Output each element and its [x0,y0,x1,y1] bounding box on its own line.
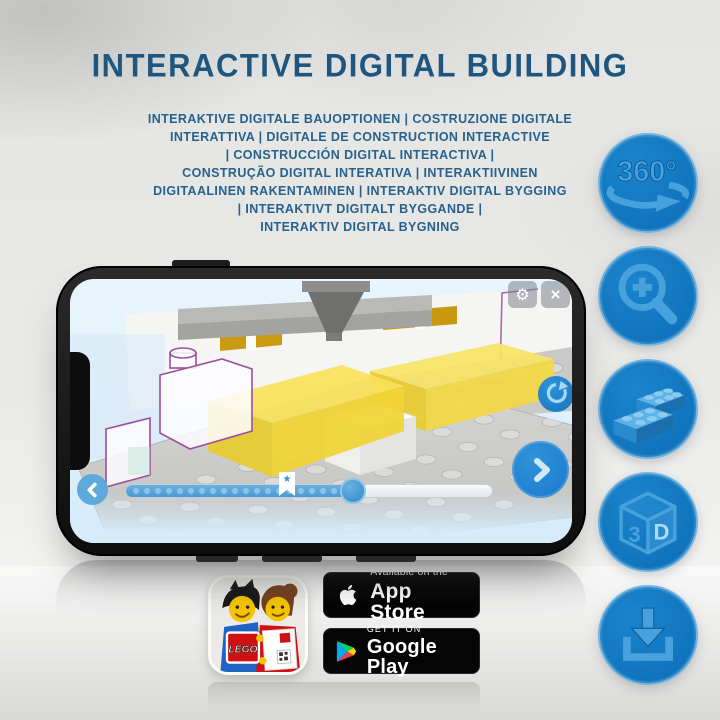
store-row-reflection [208,682,480,708]
close-button[interactable]: × [541,281,570,308]
slider-dot [298,488,304,494]
slider-dot [144,488,150,494]
feature-download-badge [598,585,698,685]
subtitle-line: | INTERAKTIVT DIGITALT BYGGANDE | [60,200,660,218]
cube-face-d: D [653,519,669,544]
slider-dot [221,488,227,494]
slider-dot [309,488,315,494]
zoom-in-icon [600,248,696,344]
lego-3d-build-scene[interactable] [70,279,572,543]
phone-screen: ⚙ × [70,279,572,543]
chevron-left-icon [82,479,104,501]
slider-dot [320,488,326,494]
next-step-button[interactable] [512,441,569,498]
subtitle-line: INTERATTIVA | DIGITALE DE CONSTRUCTION I… [60,128,660,146]
rotate-view-button[interactable] [538,376,572,412]
phone-reflection [56,560,586,640]
360-label: 360° [617,156,677,188]
slider-dot [177,488,183,494]
google-play-icon [336,638,357,665]
slider-dot [265,488,271,494]
multilingual-subtitle: INTERAKTIVE DIGITALE BAUOPTIONEN | COSTR… [60,110,660,236]
slider-dot [188,488,194,494]
previous-step-button[interactable] [77,474,108,505]
feature-zoom-badge [598,246,698,346]
download-icon [600,587,696,683]
close-icon: × [551,285,561,305]
google-play-label: Google Play [367,637,469,677]
subtitle-line: INTERAKTIVE DIGITALE BAUOPTIONEN | COSTR… [60,110,660,128]
chevron-right-icon [526,455,556,485]
slider-dot [199,488,205,494]
gear-icon: ⚙ [515,285,529,305]
slider-dot [232,488,238,494]
3d-view-icon: 3 D [600,474,696,570]
build-progress-slider[interactable]: ★ [125,484,493,498]
slider-dot [254,488,260,494]
subtitle-line: | CONSTRUCCIÓN DIGITAL INTERACTIVA | [60,146,660,164]
rotate-icon [541,379,571,409]
subtitle-line: INTERAKTIV DIGITAL BYGNING [60,218,660,236]
phone-mockup: ⚙ × [56,266,586,556]
slider-thumb[interactable] [340,478,366,504]
slider-filled-track [126,485,356,497]
subtitle-line: CONSTRUÇÃO DIGITAL INTERATIVA | INTERAKT… [60,164,660,182]
lego-brick-icon [600,361,696,457]
slider-dot [155,488,161,494]
promo-image: INTERACTIVE DIGITAL BUILDING INTERAKTIVE… [0,0,720,720]
cube-face-3: 3 [628,522,640,547]
feature-brick-badge [598,359,698,459]
slider-dot [243,488,249,494]
feature-3d-badge: 3 D [598,472,698,572]
phone-notch [70,352,90,470]
slider-dot [331,488,337,494]
360-rotation-icon: 360° [600,135,696,231]
feature-360-badge: 360° [598,133,698,233]
lego-logo-text: LEGO [228,644,257,655]
slider-dot [210,488,216,494]
settings-button[interactable]: ⚙ [508,281,537,308]
subtitle-line: DIGITAALINEN RAKENTAMINEN | INTERAKTIV D… [60,182,660,200]
slider-dot [166,488,172,494]
slider-dot [133,488,139,494]
page-title: INTERACTIVE DIGITAL BUILDING [0,47,720,84]
